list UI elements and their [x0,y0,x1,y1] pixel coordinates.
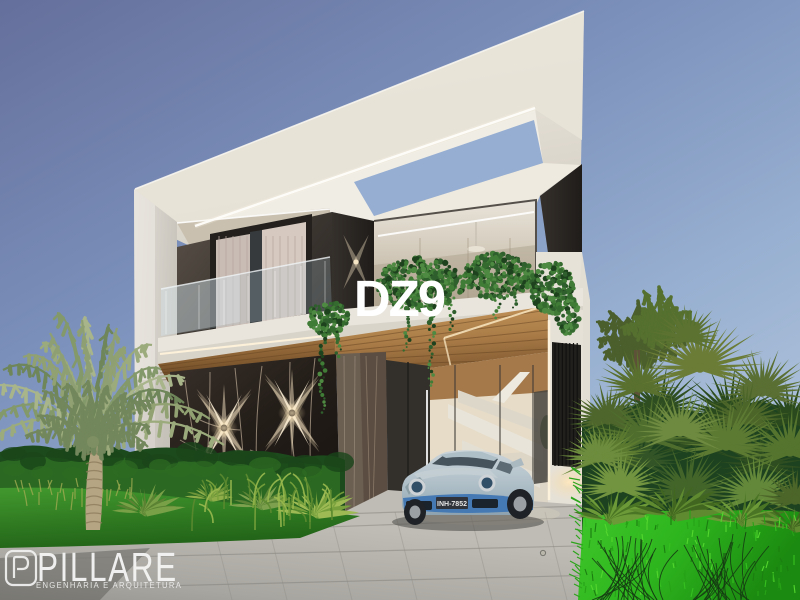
svg-text:DZ9: DZ9 [354,270,445,327]
svg-text:ENGENHARIA E ARQUITETURA: ENGENHARIA E ARQUITETURA [36,581,182,590]
svg-text:INH-7852: INH-7852 [437,501,467,508]
